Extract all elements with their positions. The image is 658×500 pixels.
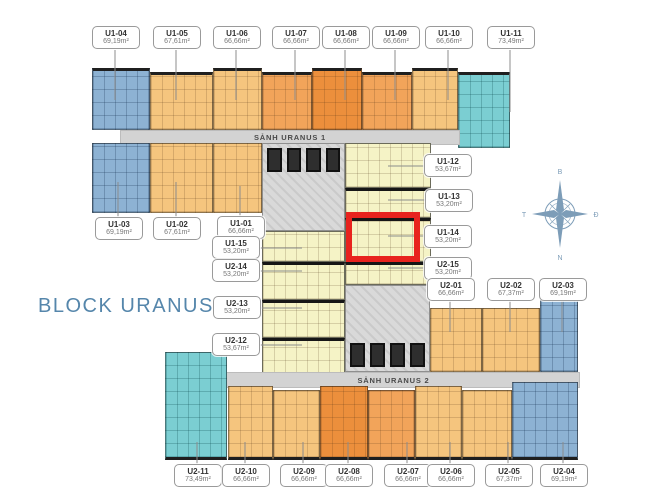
unit-area: 66,66m² [395,476,421,484]
unit-id: U1-03 [108,220,130,229]
leader-lines [0,0,658,500]
unit-label-u2-10: U2-1066,66m² [222,464,270,487]
unit-label-u1-06: U1-0666,66m² [213,26,261,49]
unit-area: 69,19m² [106,229,132,237]
unit-id: U2-13 [226,299,248,308]
unit-id: U1-09 [385,29,407,38]
unit-id: U1-13 [438,192,460,201]
unit-area: 53,20m² [435,269,461,277]
unit-label-u2-07: U2-0766,66m² [384,464,432,487]
unit-label-u1-10: U1-1066,66m² [425,26,473,49]
unit-id: U2-08 [338,467,360,476]
floor-plan: SẢNH URANUS 1 SẢNH URANUS 2 [0,0,658,500]
unit-area: 66,66m² [291,476,317,484]
unit-area: 67,37m² [496,476,522,484]
unit-id: U1-05 [166,29,188,38]
unit-id: U2-12 [225,336,247,345]
unit-id: U1-10 [438,29,460,38]
unit-label-u1-15: U1-1553,20m² [212,236,260,259]
unit-id: U2-15 [437,260,459,269]
unit-id: U1-08 [335,29,357,38]
unit-label-u2-09: U2-0966,66m² [280,464,328,487]
unit-id: U1-07 [285,29,307,38]
unit-label-u2-01: U2-0166,66m² [427,278,475,301]
unit-id: U2-07 [397,467,419,476]
unit-id: U2-01 [440,281,462,290]
unit-id: U2-02 [500,281,522,290]
unit-id: U2-04 [553,467,575,476]
unit-label-u2-08: U2-0866,66m² [325,464,373,487]
unit-label-u2-15: U2-1553,20m² [424,257,472,280]
unit-area: 66,66m² [233,476,259,484]
unit-id: U2-14 [225,262,247,271]
unit-label-u1-11: U1-1173,49m² [487,26,535,49]
unit-area: 66,66m² [333,38,359,46]
unit-label-u1-09: U1-0966,66m² [372,26,420,49]
unit-id: U1-15 [225,239,247,248]
unit-area: 66,66m² [383,38,409,46]
unit-label-u2-12: U2-1253,67m² [212,333,260,356]
highlight-box-u1-14 [346,212,420,262]
unit-label-u2-14: U2-1453,20m² [212,259,260,282]
unit-area: 66,66m² [228,228,254,236]
unit-id: U1-06 [226,29,248,38]
unit-area: 66,66m² [438,290,464,298]
unit-label-u2-03: U2-0369,19m² [539,278,587,301]
unit-area: 66,66m² [224,38,250,46]
unit-area: 66,66m² [336,476,362,484]
unit-area: 67,37m² [498,290,524,298]
unit-area: 53,20m² [436,201,462,209]
unit-id: U2-03 [552,281,574,290]
unit-label-u1-05: U1-0567,61m² [153,26,201,49]
unit-label-u2-05: U2-0567,37m² [485,464,533,487]
unit-label-u2-13: U2-1353,20m² [213,296,261,319]
unit-label-u2-02: U2-0267,37m² [487,278,535,301]
unit-area: 53,20m² [223,271,249,279]
unit-area: 66,66m² [438,476,464,484]
unit-area: 53,20m² [224,308,250,316]
unit-area: 69,19m² [550,290,576,298]
unit-label-u2-04: U2-0469,19m² [540,464,588,487]
unit-label-u1-12: U1-1253,67m² [424,154,472,177]
unit-id: U2-06 [440,467,462,476]
unit-area: 53,67m² [435,166,461,174]
unit-area: 69,19m² [103,38,129,46]
unit-id: U2-10 [235,467,257,476]
unit-id: U1-04 [105,29,127,38]
unit-area: 66,66m² [436,38,462,46]
unit-id: U1-02 [166,220,188,229]
unit-label-u1-13: U1-1353,20m² [425,189,473,212]
unit-id: U1-12 [437,157,459,166]
unit-id: U2-09 [293,467,315,476]
unit-id: U1-11 [500,29,521,38]
unit-label-u1-14: U1-1453,20m² [424,225,472,248]
unit-area: 67,61m² [164,38,190,46]
unit-label-u2-11: U2-1173,49m² [174,464,222,487]
unit-area: 69,19m² [551,476,577,484]
unit-label-u1-04: U1-0469,19m² [92,26,140,49]
unit-area: 53,20m² [435,237,461,245]
unit-id: U2-11 [187,467,208,476]
unit-area: 73,49m² [185,476,211,484]
unit-label-u1-03: U1-0369,19m² [95,217,143,240]
unit-label-u1-02: U1-0267,61m² [153,217,201,240]
unit-area: 73,49m² [498,38,524,46]
unit-area: 66,66m² [283,38,309,46]
unit-area: 53,20m² [223,248,249,256]
unit-area: 67,61m² [164,229,190,237]
unit-id: U1-14 [437,228,459,237]
unit-label-u2-06: U2-0666,66m² [427,464,475,487]
unit-id: U2-05 [498,467,520,476]
unit-area: 53,67m² [223,345,249,353]
unit-label-u1-07: U1-0766,66m² [272,26,320,49]
unit-id: U1-01 [230,219,252,228]
unit-label-u1-08: U1-0866,66m² [322,26,370,49]
